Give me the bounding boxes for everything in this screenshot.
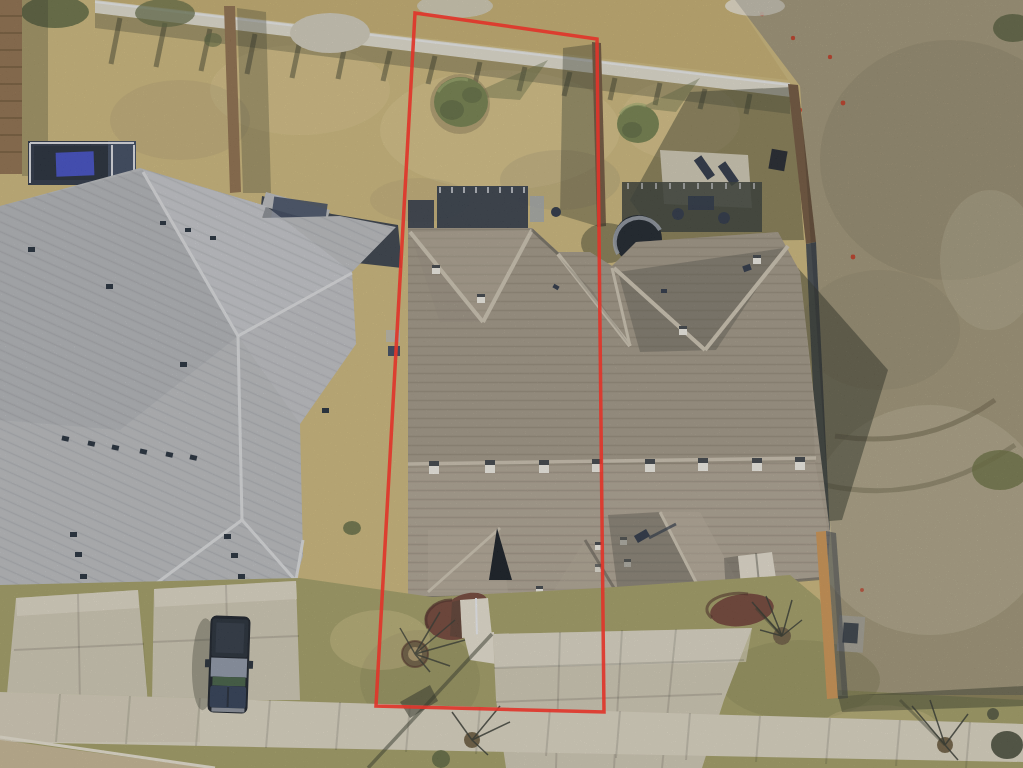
aerial-photo-canvas: Aerial drone photograph of a duplex resi… (0, 0, 1023, 768)
aerial-photo: Aerial drone photograph of a duplex resi… (0, 0, 1023, 768)
photo-grain-light (0, 0, 1023, 768)
